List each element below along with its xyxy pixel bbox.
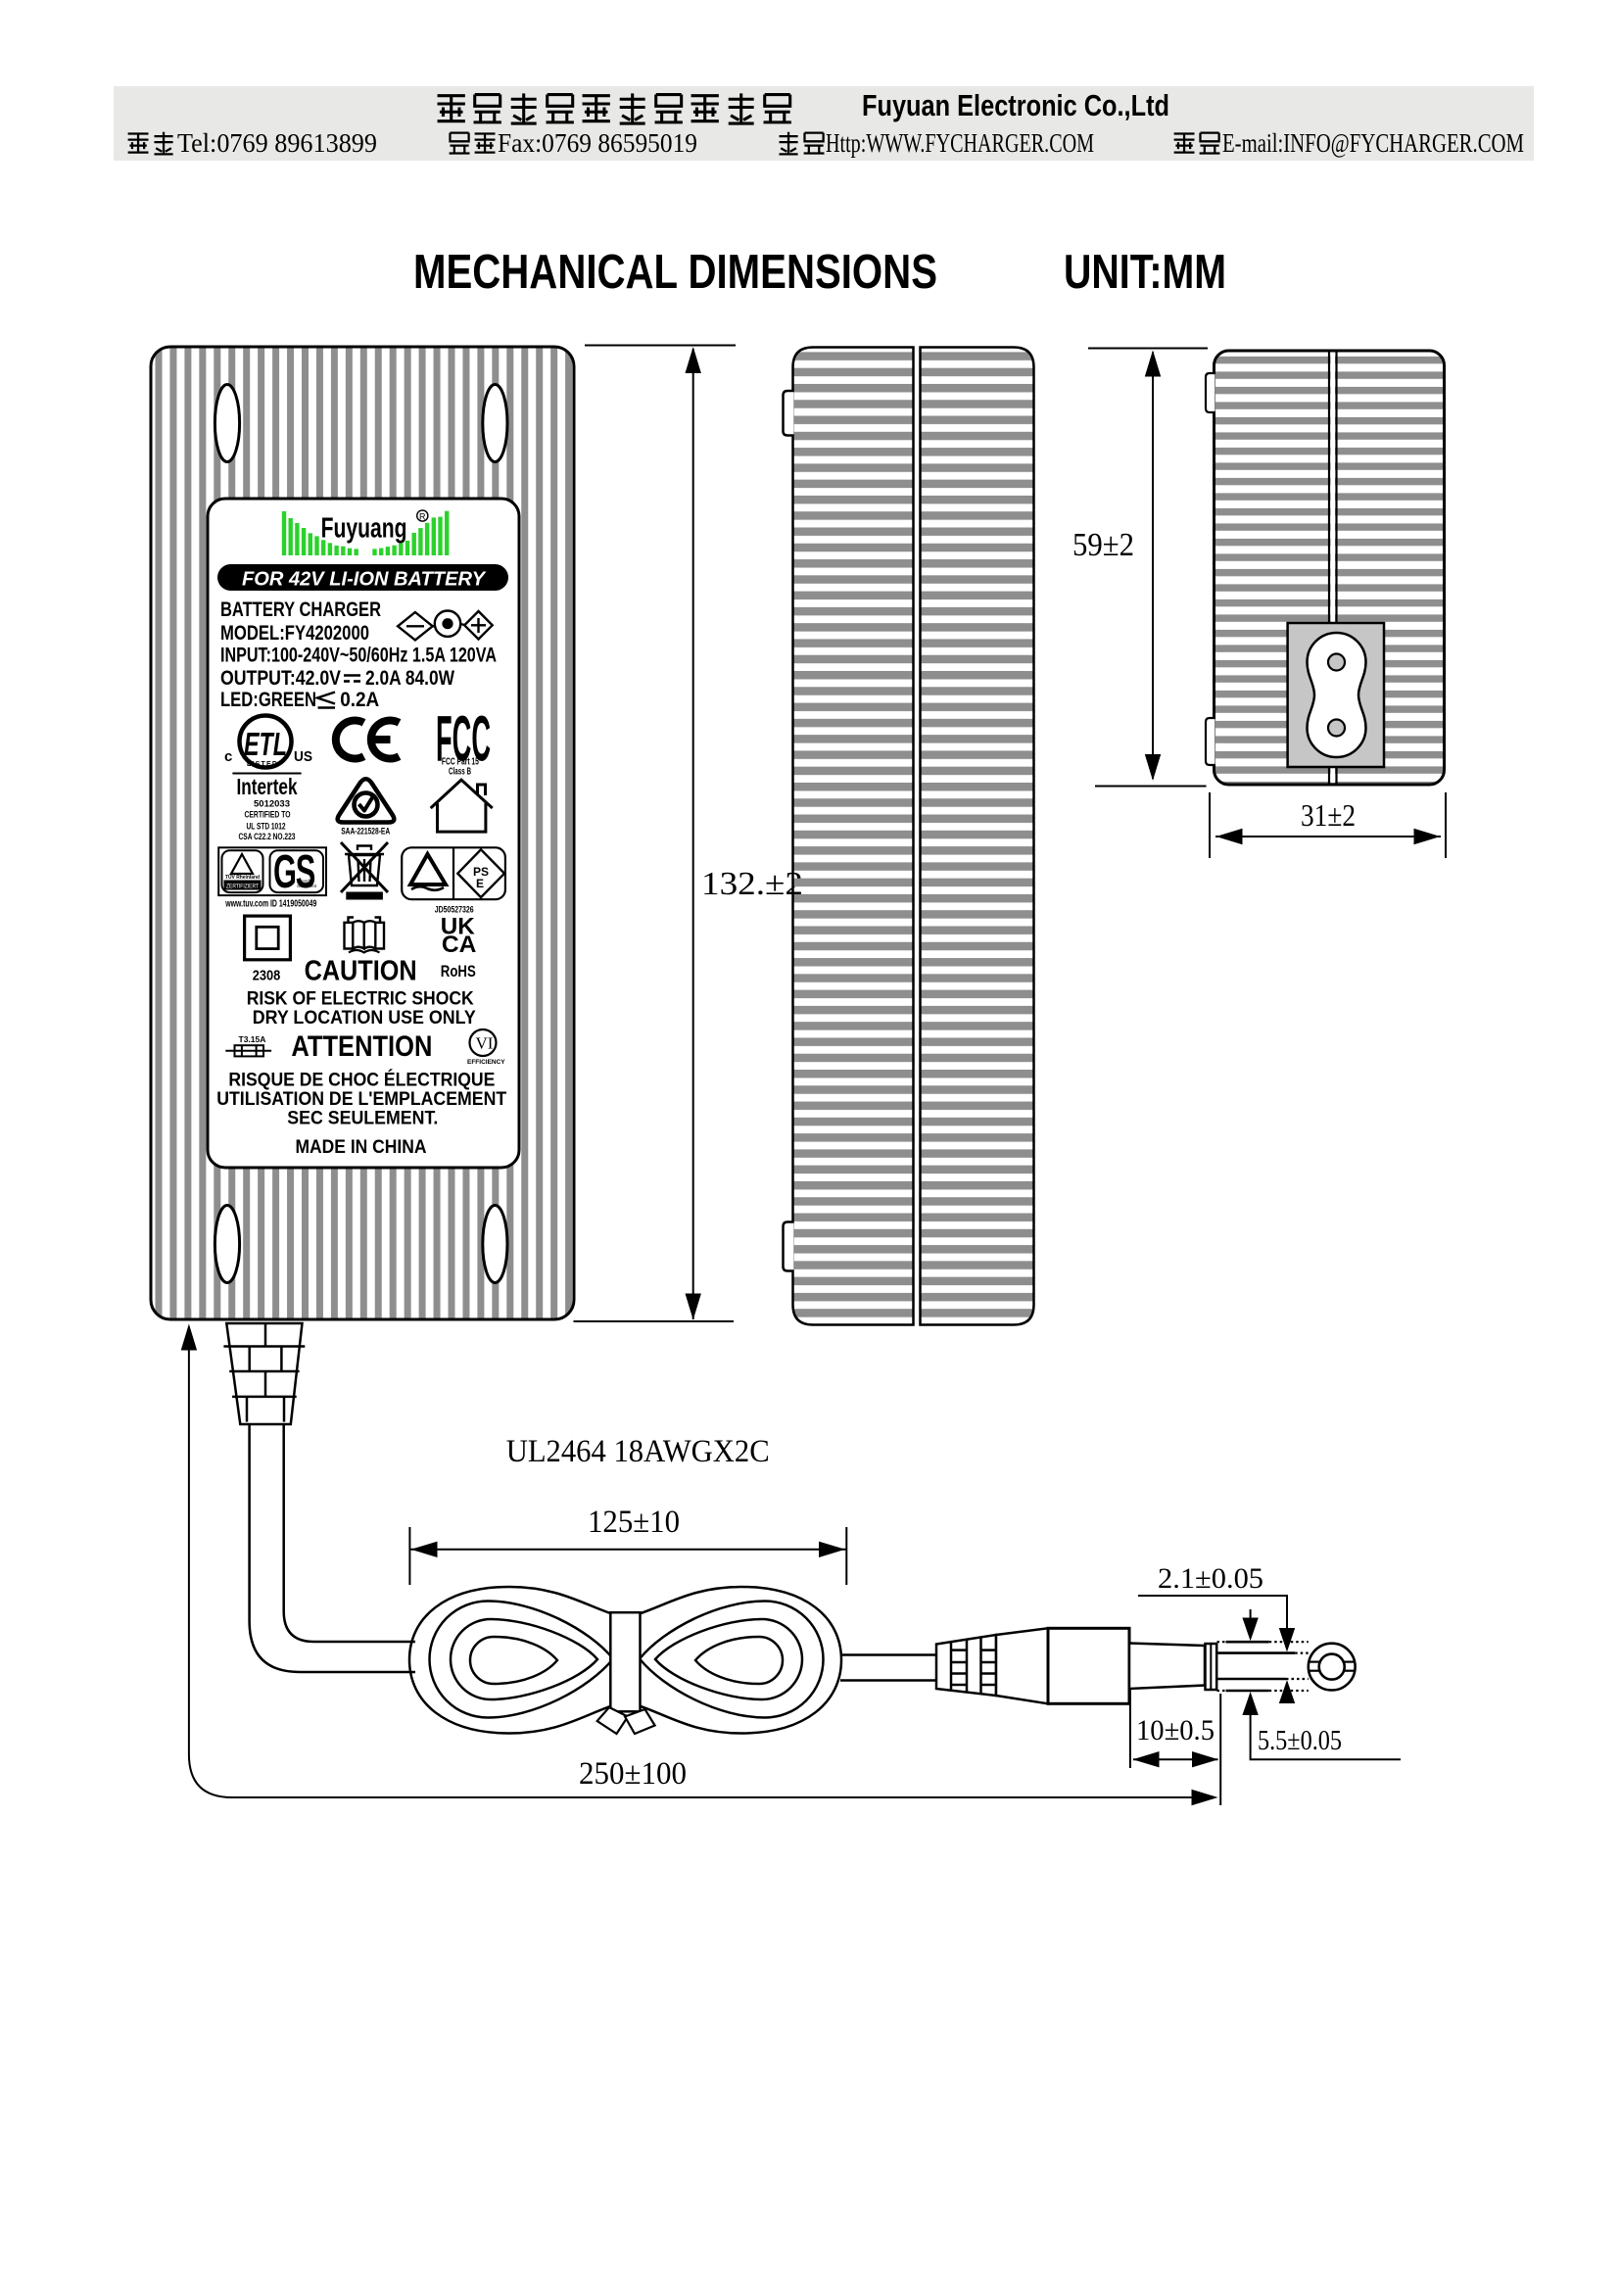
svg-text:Fuyuang: Fuyuang [321, 513, 407, 545]
svg-text:GS: GS [273, 846, 315, 898]
svg-text:2.1±0.05: 2.1±0.05 [1158, 1562, 1263, 1595]
svg-text:31±2: 31±2 [1301, 797, 1356, 833]
svg-text:ETL: ETL [244, 726, 287, 762]
svg-text:0.2A: 0.2A [340, 688, 379, 711]
svg-text:ATTENTION: ATTENTION [291, 1030, 432, 1063]
svg-text:Fuyuan Electronic Co.,Ltd: Fuyuan Electronic Co.,Ltd [862, 88, 1169, 122]
svg-text:2.0A 84.0W: 2.0A 84.0W [365, 666, 455, 690]
svg-text:www.tuv.com ID 1419050049: www.tuv.com ID 1419050049 [225, 898, 317, 910]
svg-text:E-mail:INFO@FYCHARGER.COM: E-mail:INFO@FYCHARGER.COM [1222, 128, 1524, 158]
svg-text:TÜV Rheinland: TÜV Rheinland [225, 874, 260, 881]
svg-text:T3.15A: T3.15A [239, 1034, 266, 1044]
svg-text:5.5±0.05: 5.5±0.05 [1258, 1725, 1342, 1756]
svg-text:DRY LOCATION USE ONLY: DRY LOCATION USE ONLY [253, 1007, 476, 1028]
svg-text:R: R [419, 512, 426, 522]
svg-text:SAA-221528-EA: SAA-221528-EA [341, 827, 390, 837]
svg-text:SEC SEULEMENT.: SEC SEULEMENT. [287, 1108, 438, 1129]
svg-text:Intertek: Intertek [237, 774, 298, 799]
svg-text:OUTPUT:42.0V: OUTPUT:42.0V [220, 666, 342, 690]
svg-text:125±10: 125±10 [588, 1505, 680, 1540]
svg-text:Sicherheit: Sicherheit [297, 884, 317, 888]
svg-text:MADE IN CHINA: MADE IN CHINA [296, 1136, 427, 1158]
svg-text:RoHS: RoHS [441, 963, 476, 981]
svg-text:MECHANICAL DIMENSIONS: MECHANICAL DIMENSIONS [413, 246, 937, 299]
svg-text:Class B: Class B [449, 767, 471, 778]
svg-text:E: E [476, 877, 484, 890]
svg-text:CA: CA [442, 932, 477, 958]
svg-text:US: US [294, 748, 312, 765]
svg-text:FOR 42V LI-ION BATTERY: FOR 42V LI-ION BATTERY [242, 568, 487, 591]
svg-text:MODEL:FY4202000: MODEL:FY4202000 [220, 621, 369, 645]
svg-text:132.±2: 132.±2 [701, 866, 803, 902]
svg-text:EFFICIENCY: EFFICIENCY [467, 1059, 505, 1066]
svg-text:250±100: 250±100 [579, 1756, 687, 1792]
svg-text:c: c [224, 748, 232, 765]
svg-text:LISTED: LISTED [247, 761, 278, 768]
svg-text:UL STD 1012: UL STD 1012 [247, 822, 286, 833]
svg-text:CSA C22.2 NO.223: CSA C22.2 NO.223 [239, 832, 296, 842]
svg-text:59±2: 59±2 [1072, 527, 1134, 563]
svg-text:ZERTIFIZIERT: ZERTIFIZIERT [226, 885, 259, 890]
svg-text:10±0.5: 10±0.5 [1136, 1714, 1215, 1746]
svg-text:5012033: 5012033 [254, 799, 290, 810]
svg-text:Tel:0769 89613899: Tel:0769 89613899 [177, 128, 377, 158]
svg-text:CAUTION: CAUTION [305, 956, 417, 987]
svg-text:UL2464 18AWGX2C: UL2464 18AWGX2C [506, 1434, 770, 1469]
svg-text:LED:GREEN: LED:GREEN [220, 688, 316, 711]
svg-text:BATTERY CHARGER: BATTERY CHARGER [220, 598, 381, 621]
svg-text:2308: 2308 [253, 968, 281, 984]
svg-text:CERTIFIED TO: CERTIFIED TO [245, 810, 291, 821]
svg-text:VI: VI [476, 1034, 494, 1053]
svg-text:Fax:0769 86595019: Fax:0769 86595019 [498, 128, 697, 158]
svg-text:Http:WWW.FYCHARGER.COM: Http:WWW.FYCHARGER.COM [826, 128, 1094, 158]
svg-text:INPUT:100-240V~50/60Hz 1.5A 12: INPUT:100-240V~50/60Hz 1.5A 120VA [220, 644, 497, 667]
svg-text:UNIT:MM: UNIT:MM [1064, 246, 1226, 299]
